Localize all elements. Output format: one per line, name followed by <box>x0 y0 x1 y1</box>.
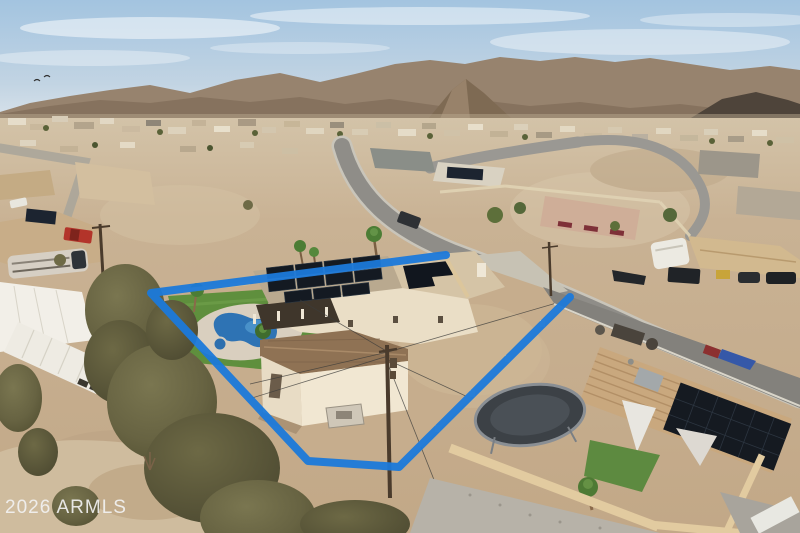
aerial-photo: 2026 ARMLS <box>0 0 800 533</box>
black-pickup <box>667 267 700 284</box>
watermark-text: 2026 ARMLS <box>5 497 127 518</box>
far-right-roof-b <box>736 186 800 220</box>
concrete-pad <box>326 404 364 428</box>
far-right-roof-a <box>698 150 760 178</box>
spa <box>214 338 227 351</box>
yellow-atv <box>716 270 730 279</box>
dark-car-a <box>738 272 760 283</box>
dark-car-b <box>766 272 796 284</box>
chimney <box>477 263 486 277</box>
